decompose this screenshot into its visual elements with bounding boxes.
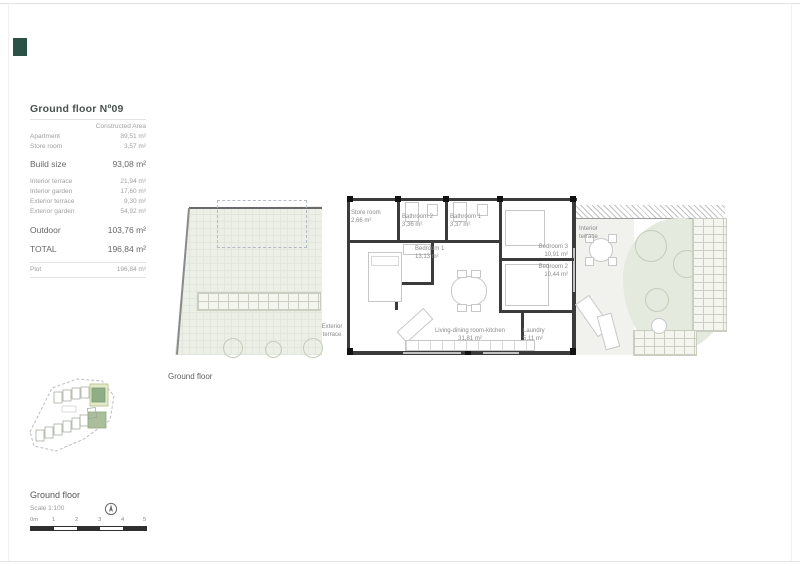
tree-icon [303, 338, 323, 358]
highlighted-unit [88, 412, 106, 428]
tree-icon [265, 341, 282, 358]
table-rule [30, 119, 146, 120]
scale-bar-ticks: 0m 1 2 3 4 5 [30, 517, 160, 525]
pillar [497, 196, 503, 202]
room-label-laundry: Laundry 5,11 m² [523, 328, 563, 343]
brochure-page: { "brand": { "logo_color": "#2b5247" }, … [0, 0, 800, 566]
table-row-plot: Plot196,84 m² [30, 265, 146, 275]
garden-paving-grid [197, 292, 321, 311]
room-label-exterior-terrace: Exterior terrace [317, 324, 347, 339]
pillar [347, 196, 353, 202]
table-row-interior-terrace: Interior terrace21,94 m² [30, 177, 146, 187]
pillar [347, 348, 353, 355]
wall-top [347, 198, 577, 201]
wall-store-bath2 [397, 198, 400, 242]
plan-caption: Ground floor [168, 372, 212, 381]
chair-icon [608, 257, 617, 266]
table-column-header: Constructed Area [30, 123, 146, 130]
chair-icon [608, 234, 617, 243]
floor-plan: Exterior terrace [165, 188, 725, 368]
table-row-interior-garden: Interior garden17,60 m² [30, 187, 146, 197]
table-row-exterior-garden: Exterior garden54,92 m² [30, 207, 146, 217]
page-right-rule [791, 3, 792, 561]
garden-table [651, 318, 667, 334]
pillar [570, 196, 576, 202]
wall-bath2-bath1 [445, 198, 448, 242]
footer-scale-label: Scale 1:100 [30, 505, 64, 512]
chair-icon [471, 304, 481, 312]
table-rule [30, 262, 146, 263]
room-label-bedroom2: Bedroom 2 10,44 m² [510, 264, 568, 279]
site-plan-minimap [22, 372, 122, 462]
scale-bar: 0m 1 2 3 4 5 [30, 517, 160, 531]
garden-pergola-outline [217, 200, 307, 248]
pillar [443, 196, 449, 202]
pillar [395, 196, 401, 202]
window-segment [403, 352, 461, 354]
page-top-rule [0, 3, 800, 4]
wall-bathrooms-bottom [347, 240, 499, 243]
window-segment [483, 352, 519, 354]
table-title: Ground floor Nº09 [30, 103, 146, 115]
page-left-rule [8, 3, 9, 561]
chair-icon [471, 270, 481, 278]
page-bottom-rule [0, 561, 800, 562]
table-row-outdoor: Outdoor103,76 m² [30, 224, 146, 237]
chair-icon [457, 304, 467, 312]
tree-icon [645, 288, 669, 312]
chair-icon [585, 257, 594, 266]
window-segment [573, 248, 575, 292]
table-row-build-size: Build size93,08 m² [30, 158, 146, 171]
wall-bottom [347, 351, 576, 355]
room-label-bedroom3: Bedroom 3 10,91 m² [510, 244, 568, 259]
tree-icon [223, 338, 243, 358]
table-row-total: TOTAL196,84 m² [30, 243, 146, 256]
table-row-exterior-terrace: Exterior terrace9,30 m² [30, 197, 146, 207]
room-label-store-room: Store room 2,66 m² [351, 210, 395, 225]
north-arrow-icon [104, 502, 118, 516]
wall-left [347, 198, 350, 355]
area-summary-table: Ground floor Nº09 Constructed Area Apart… [30, 103, 146, 280]
chair-icon [457, 270, 467, 278]
brand-logo [13, 38, 27, 56]
room-label-bathroom2: Bathroom 2 3,36 m² [402, 214, 444, 229]
table-row-store-room: Store room3,57 m² [30, 142, 146, 152]
table-row-apartment: Apartment89,51 m² [30, 132, 146, 142]
table-rule [30, 277, 146, 278]
unit-row [36, 415, 88, 441]
bed-pillow [371, 256, 399, 266]
right-paving-grid [692, 218, 727, 332]
dining-table [451, 276, 487, 306]
scale-bar-segments [30, 526, 147, 531]
room-label-bathroom1: Bathroom 1 3,37 m² [450, 214, 492, 229]
highlighted-unit [92, 388, 105, 402]
room-label-interior-terrace: Interior terrace [579, 226, 607, 241]
footer-plan-title: Ground floor [30, 490, 80, 500]
wall-bed2-bottom [499, 310, 574, 313]
pool-outline [62, 406, 76, 412]
room-label-bedroom1: Bedroom 1 13,13 m² [415, 246, 459, 261]
bottom-paving-grid [633, 330, 697, 356]
roof-hatch [576, 205, 725, 219]
bed-bedroom3 [505, 210, 545, 246]
wall-bedrooms-left [499, 198, 502, 313]
tree-icon [635, 230, 667, 262]
room-label-living: Living-dining room-kitchen 31,81 m² [410, 328, 530, 343]
